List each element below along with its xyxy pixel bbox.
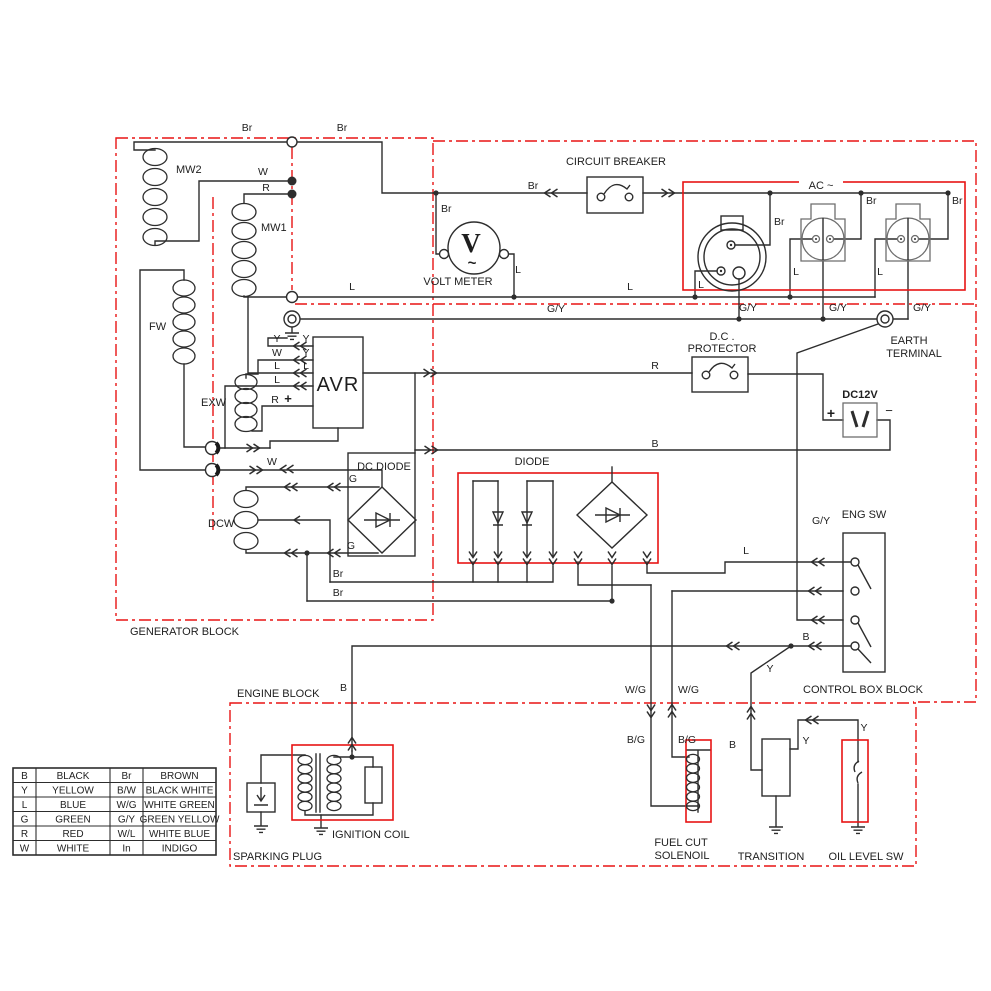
exw-coil (235, 375, 257, 432)
connector-arrow-icon (281, 465, 287, 473)
volt-meter-symbol: V (461, 228, 481, 258)
wire-label: − (885, 403, 893, 418)
junction-dot (945, 190, 950, 195)
wire-label: G (349, 473, 357, 485)
wire-label: G/Y (812, 515, 830, 527)
fw-label: FW (149, 321, 167, 333)
wire-label: L (349, 281, 355, 293)
engine-block-label: ENGINE BLOCK (237, 688, 320, 700)
ignition-secondary-coil (327, 755, 341, 810)
wire-label: Br (242, 122, 253, 134)
junction-dot (858, 190, 863, 195)
avr: AVR (313, 337, 363, 428)
ac-socket-2 (801, 204, 845, 261)
dc12v-label: DC12V (842, 389, 878, 401)
transition-label: TRANSITION (738, 851, 805, 863)
oil-level-switch: OIL LEVEL SW (829, 740, 905, 863)
block-boundaries (116, 138, 976, 866)
legend-cell: WHITE GREEN (144, 800, 215, 811)
volt-meter-ac-symbol: ~ (468, 255, 477, 272)
junction-dots (304, 190, 950, 759)
legend-cell: W (20, 843, 30, 854)
junction-dot (609, 598, 614, 603)
legend-cell: WHITE (57, 843, 90, 854)
connector-arrow-icon (574, 552, 582, 558)
wire-label: Br (866, 195, 877, 207)
wire-label: Y (273, 333, 280, 345)
generator-block-label: GENERATOR BLOCK (130, 626, 240, 638)
wire-label: R (262, 182, 270, 194)
dcw-label: DCW (208, 518, 235, 530)
wire-label: B/G (627, 734, 645, 746)
ac-label: AC ~ (809, 180, 834, 192)
wire-label: B (802, 631, 809, 643)
wire-label: B (651, 438, 658, 450)
diode-block: DIODE (458, 456, 658, 563)
wire-label: + (827, 405, 835, 421)
junction-dot (511, 294, 516, 299)
legend-cell: W/L (118, 829, 136, 840)
legend-cell: B/W (117, 785, 136, 796)
legend-cell: BLACK (57, 771, 90, 782)
wire-label: B (729, 739, 736, 751)
mw2-coil (143, 149, 167, 246)
wire-label: B/G (678, 734, 696, 746)
wire-label: G (347, 540, 355, 552)
junction-dot (304, 550, 309, 555)
ignition-primary-coil (298, 755, 312, 810)
legend-cell: GREEN (55, 814, 91, 825)
legend-cell: BLUE (60, 800, 86, 811)
wire-label: L (515, 264, 521, 276)
fuel-cut-label1: FUEL CUT (654, 837, 708, 849)
eng-sw: ENG SW (842, 509, 887, 672)
sparking-plug: SPARKING PLUG (233, 783, 322, 863)
legend-cell: R (21, 829, 28, 840)
sparking-plug-label: SPARKING PLUG (233, 851, 322, 863)
legend-cell: B (21, 771, 28, 782)
wire-label: L (627, 281, 633, 293)
ground-icon (314, 828, 328, 834)
diode-label: DIODE (515, 456, 550, 468)
ignition-coil-label: IGNITION COIL (332, 829, 410, 841)
junction-dot (788, 643, 793, 648)
diode-highlight-box (458, 473, 658, 563)
control-box-block-outline (433, 141, 976, 702)
legend-cell: RED (62, 829, 83, 840)
ground-icon (254, 826, 268, 832)
connector-arrow-icon (643, 552, 651, 558)
wires (134, 142, 948, 827)
wire-label: Br (528, 180, 539, 192)
wire-label: L (877, 266, 883, 278)
wire-label: L (743, 545, 749, 557)
ac-outlet-block: AC ~ (683, 179, 965, 291)
ground-icon (851, 827, 865, 833)
wire-label: Br (333, 587, 344, 599)
wire-label: L (793, 266, 799, 278)
circuit-breaker: CIRCUIT BREAKER (566, 156, 666, 213)
generated-symbols (143, 149, 951, 835)
terminals (206, 137, 301, 477)
junction-dot (349, 754, 354, 759)
wire-label: Br (337, 122, 348, 134)
oil-level-label: OIL LEVEL SW (829, 851, 905, 863)
wire-label: W (258, 166, 268, 178)
wire-label: W/G (625, 684, 646, 696)
junction-dot (736, 316, 741, 321)
avr-label: AVR (317, 374, 360, 396)
earth-terminal-label1: EARTH (890, 335, 927, 347)
mw1-coil (232, 204, 256, 297)
wire-label: + (284, 391, 292, 406)
fuel-cut-label2: SOLENOIL (654, 850, 709, 862)
legend-cell: G (21, 814, 29, 825)
transition: TRANSITION (738, 739, 805, 863)
wire-label: Y (860, 722, 867, 734)
fuel-cut-solenoid: FUEL CUT SOLENOIL (654, 740, 711, 862)
wire-label: G/Y (739, 302, 757, 314)
dc12v-socket: DC12V (842, 389, 878, 437)
dc-protector: D.C . PROTECTOR (688, 331, 757, 392)
junction-dot (433, 190, 438, 195)
wire-label: R (651, 360, 659, 372)
legend-cell: WHITE BLUE (149, 829, 210, 840)
legend-cell: YELLOW (52, 785, 94, 796)
wire-label: Br (441, 203, 452, 215)
wire-label: Y (766, 663, 773, 675)
ac-highlight-box (683, 182, 965, 290)
wire-label: R (271, 394, 279, 406)
fw-coil (173, 280, 195, 364)
wire-label: L (698, 279, 704, 291)
connector-arrow-icon (288, 465, 294, 473)
dc-diode: DC DIODE (348, 453, 416, 556)
dc-protector-label2: PROTECTOR (688, 343, 757, 355)
legend-cell: BROWN (160, 771, 198, 782)
wire-label: Br (952, 195, 963, 207)
legend-cell: Y (21, 785, 28, 796)
wire-label: G/Y (913, 302, 931, 314)
wire-label: Br (774, 216, 785, 228)
connector-arrow-icon (608, 552, 616, 558)
junction-dot (692, 294, 697, 299)
brush-terminals (206, 442, 219, 477)
wire-label: B (340, 682, 347, 694)
dcw-coil (234, 491, 258, 550)
engine-block-outline (230, 703, 916, 866)
legend-cell: GREEN YELLOW (140, 814, 220, 825)
legend-cell: Br (122, 771, 133, 782)
legend-table: BBLACKBrBROWNYYELLOWB/WBLACK WHITELBLUEW… (13, 768, 220, 855)
junction-dot (820, 316, 825, 321)
wire-label: W (267, 456, 277, 468)
junction-dot (767, 190, 772, 195)
legend-cell: INDIGO (162, 843, 198, 854)
wire-label: Y (302, 347, 309, 359)
legend-cell: L (22, 800, 28, 811)
wire-label: Y (302, 333, 309, 345)
oil-level-highlight-box (842, 740, 868, 822)
wire-label: L (274, 360, 280, 372)
legend-cell: In (122, 843, 130, 854)
earth-terminal-label2: TERMINAL (886, 348, 942, 360)
wire-label: Y (802, 735, 809, 747)
legend-cell: G/Y (118, 814, 136, 825)
wire-label: W/G (678, 684, 699, 696)
circuit-breaker-label: CIRCUIT BREAKER (566, 156, 666, 168)
dc-protector-label1: D.C . (709, 331, 734, 343)
wire-label: W (272, 347, 282, 359)
wire-label: G/Y (547, 303, 565, 315)
junction-dot (787, 294, 792, 299)
dc-diode-label: DC DIODE (357, 461, 411, 473)
wire-label: G/Y (829, 302, 847, 314)
control-box-block-label: CONTROL BOX BLOCK (803, 684, 924, 696)
wiring-diagram-page: V ~ VOLT METER CIRCUIT BREAKER AC ~ (0, 0, 991, 991)
legend-cell: BLACK WHITE (146, 785, 214, 796)
ground-symbols (254, 333, 865, 834)
wire-label: Br (333, 568, 344, 580)
mw1-label: MW1 (261, 222, 287, 234)
wire-label: L (274, 374, 280, 386)
earth-terminal: EARTH TERMINAL (877, 311, 942, 360)
legend-cell: W/G (117, 800, 137, 811)
exw-label: EXW (201, 397, 227, 409)
ac-socket-3 (886, 204, 930, 261)
wire-label: L (303, 360, 309, 372)
mw2-label: MW2 (176, 164, 202, 176)
ac-socket-3pin (698, 216, 766, 291)
wiring-diagram: V ~ VOLT METER CIRCUIT BREAKER AC ~ (0, 0, 991, 991)
ground-icon (769, 827, 783, 833)
volt-meter-label: VOLT METER (423, 276, 492, 288)
eng-sw-label: ENG SW (842, 509, 887, 521)
